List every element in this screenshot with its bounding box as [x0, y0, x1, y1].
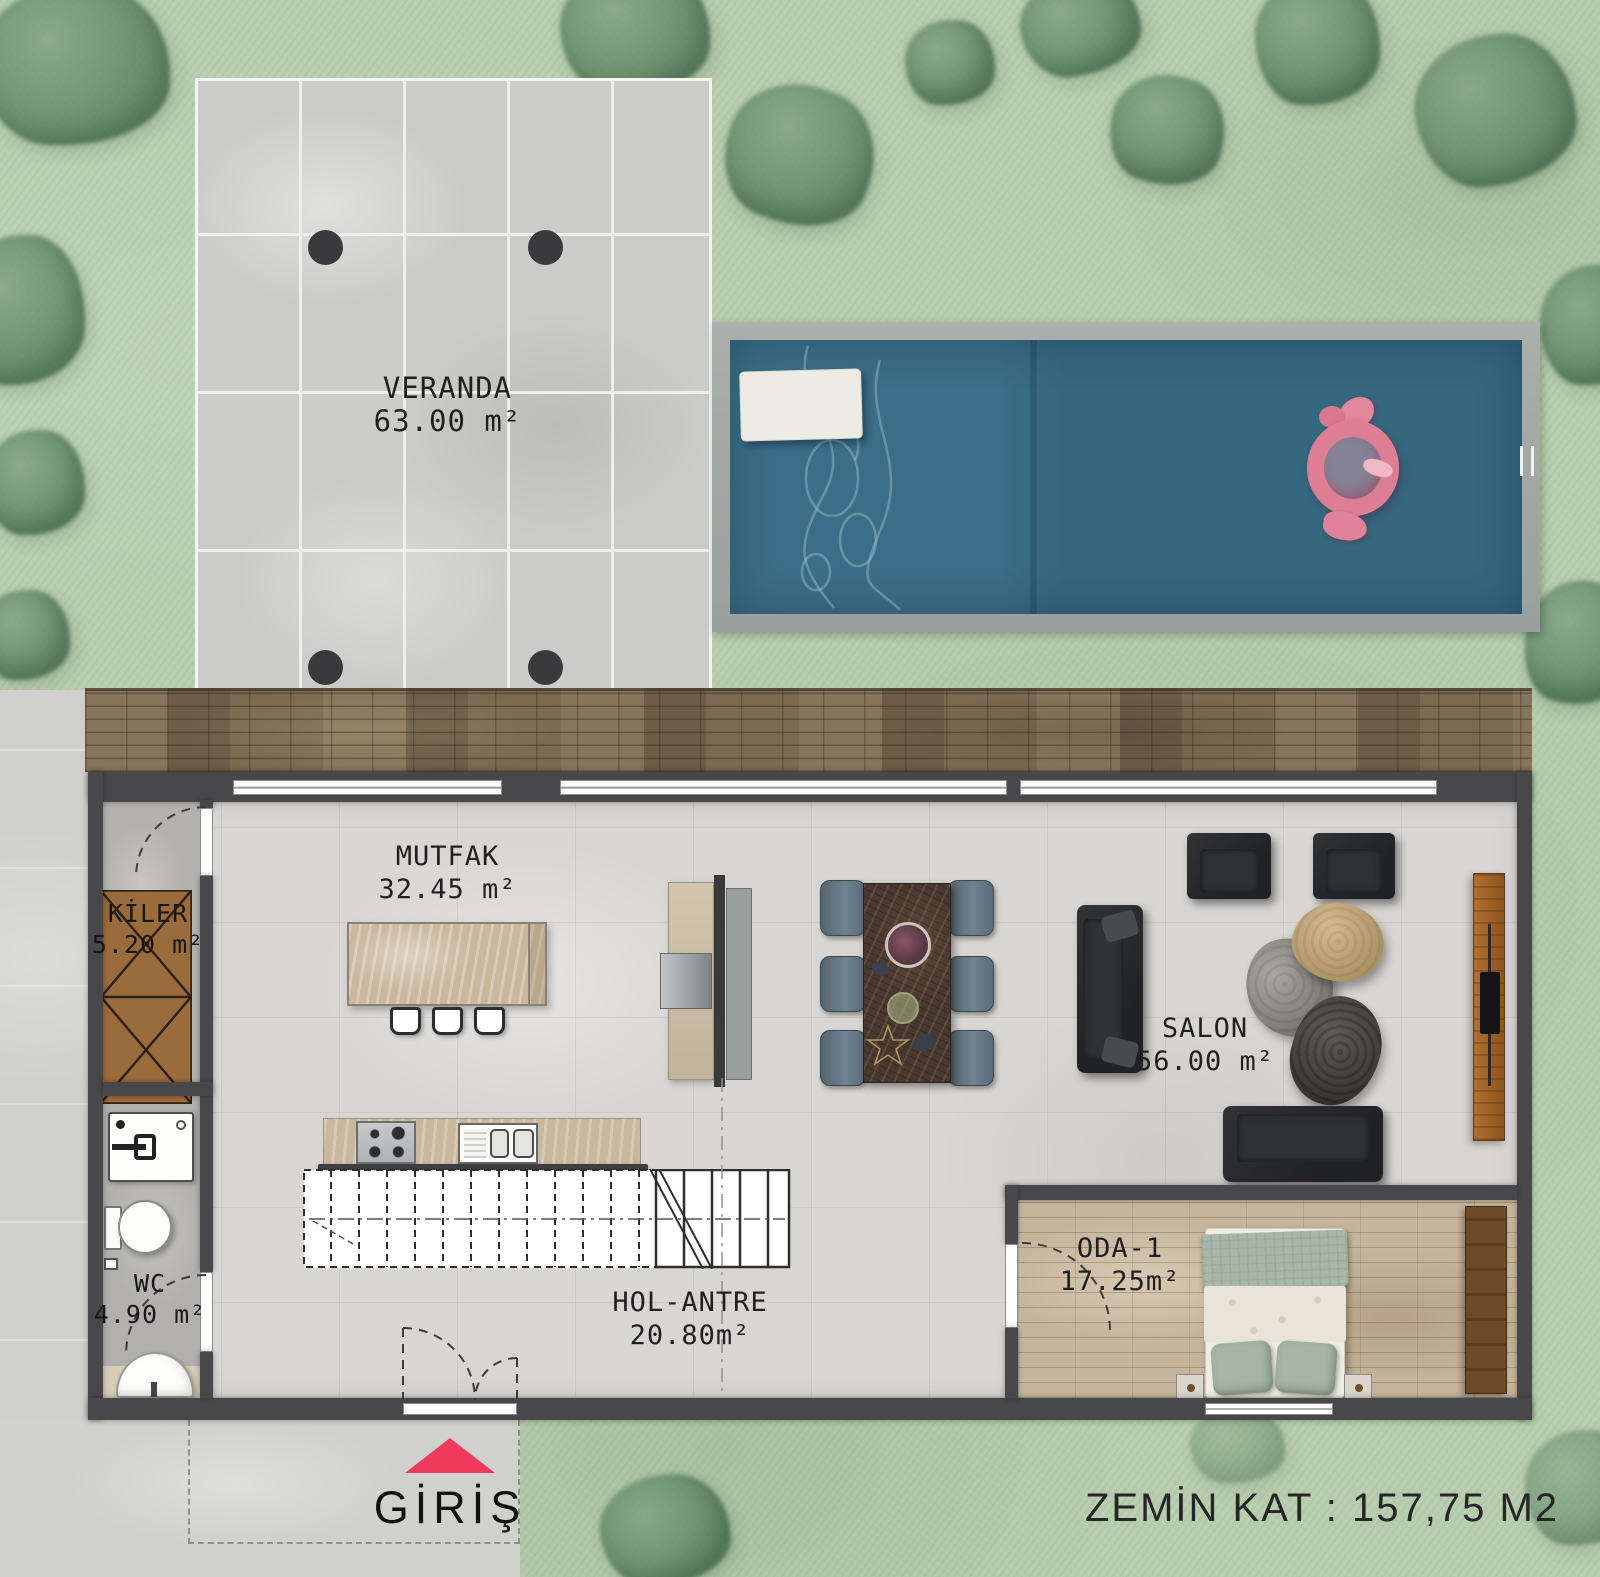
tree: [595, 1470, 734, 1577]
room-area: 4.90 m²: [85, 1299, 215, 1330]
room-name: MUTFAK: [360, 840, 535, 873]
shower-head: [176, 1120, 186, 1130]
bed-pillow: [1210, 1340, 1273, 1396]
pool-lounger: [739, 368, 863, 441]
pool-ladder: [1520, 446, 1534, 476]
veranda-column: [528, 650, 563, 685]
wall-pantry-wc-divider: [103, 1082, 213, 1096]
star-ornament: [866, 1024, 910, 1068]
bed-blanket: [1201, 1229, 1349, 1290]
room-name: KİLER: [88, 898, 208, 929]
nightstand-knob: [1187, 1384, 1195, 1392]
sofa-seat: [1237, 1114, 1369, 1162]
armchair-seat: [1326, 849, 1382, 893]
room-label-mutfak: MUTFAK 32.45 m²: [360, 840, 535, 906]
floor-plan: VERANDA 63.00 m² MUTFAK 32.45 m² KİLER 5…: [0, 0, 1600, 1577]
dining-chair: [820, 880, 866, 936]
bed-pillow: [1274, 1340, 1337, 1396]
table-decor: [870, 960, 891, 979]
tree: [1255, 0, 1380, 105]
tv-screen: [1480, 972, 1500, 1034]
entrance-label: GİRİŞ: [330, 1482, 570, 1534]
dining-chair: [948, 1030, 994, 1086]
pool-lane-shadow: [1030, 340, 1037, 614]
fruit-bowl: [885, 922, 931, 968]
dining-chair: [820, 956, 866, 1012]
wall-bedroom-left: [1005, 1328, 1018, 1398]
wall-top: [88, 772, 1532, 802]
drink-glass: [887, 992, 919, 1024]
sink-unit: [458, 1123, 538, 1164]
nightstand: [1344, 1374, 1372, 1400]
wall-bedroom-top: [1005, 1185, 1517, 1200]
dining-chair: [820, 1030, 866, 1086]
kitchen-island: [347, 922, 547, 1006]
wall-bedroom-left: [1005, 1185, 1018, 1244]
bedroom-door: [1005, 1244, 1018, 1328]
sofa-horizontal: [1223, 1106, 1383, 1182]
wall-partition: [200, 800, 213, 808]
bar-stool: [390, 1007, 421, 1035]
tree: [0, 430, 85, 535]
room-name: HOL-ANTRE: [600, 1286, 780, 1319]
shower-faucet-icon: [134, 1134, 156, 1160]
tree: [1098, 62, 1238, 198]
shower-drain: [116, 1120, 125, 1129]
tree: [1012, 0, 1148, 85]
veranda-column: [308, 650, 343, 685]
floor-title: ZEMİN KAT : 157,75 M2: [1085, 1486, 1575, 1531]
veranda-column: [308, 230, 343, 265]
armchair-seat: [1200, 849, 1258, 893]
room-area: 20.80m²: [600, 1319, 780, 1352]
bar-stool: [432, 1007, 463, 1035]
dining-table: [863, 883, 951, 1083]
room-area: 5.20 m²: [88, 929, 208, 960]
tree: [0, 235, 85, 385]
wall-partition: [200, 1352, 213, 1398]
sink-basin: [490, 1129, 509, 1158]
room-label-kiler: KİLER 5.20 m²: [88, 898, 208, 960]
cabinet-side-panel: [726, 888, 752, 1080]
tree: [1405, 25, 1584, 196]
toilet-bowl: [118, 1200, 172, 1254]
built-in-appliance: [660, 953, 712, 1009]
bed-duvet: [1204, 1286, 1346, 1342]
tree: [0, 0, 170, 145]
veranda-column: [528, 230, 563, 265]
dining-chair: [948, 880, 994, 936]
island-end-band: [528, 924, 545, 1004]
armchair: [1313, 833, 1395, 899]
entry-door-leaf: [403, 1403, 517, 1415]
washbasin-tap: [151, 1382, 157, 1397]
bar-stool: [474, 1007, 505, 1035]
room-name: SALON: [1135, 1012, 1275, 1045]
sofa-pillow: [1100, 1035, 1139, 1068]
entrance-arrow-icon: [405, 1438, 495, 1473]
sofa-pillow: [1100, 909, 1140, 943]
sofa-vertical: [1077, 905, 1143, 1073]
tree: [1540, 265, 1600, 385]
room-area: 56.00 m²: [1135, 1045, 1275, 1078]
sink-drainboard: [464, 1129, 486, 1158]
tree: [706, 64, 895, 247]
armchair: [1187, 833, 1271, 899]
tree: [0, 590, 70, 680]
window-strip: [233, 780, 502, 795]
room-label-salon: SALON 56.00 m²: [1135, 1012, 1275, 1078]
pantry-door: [200, 808, 213, 876]
tv-panel: [1473, 873, 1505, 1141]
wood-deck: [85, 688, 1532, 772]
wardrobe: [1465, 1206, 1507, 1394]
wall-bottom: [88, 1398, 1532, 1420]
nightstand-knob: [1355, 1384, 1363, 1392]
room-area: 63.00 m²: [320, 405, 575, 438]
shower-tray: [108, 1112, 194, 1182]
room-name: VERANDA: [320, 372, 575, 405]
room-name: ODA-1: [1050, 1232, 1190, 1265]
cabinet-frame: [714, 875, 725, 1087]
sink-basin: [513, 1129, 534, 1158]
room-label-hol-antre: HOL-ANTRE 20.80m²: [600, 1286, 780, 1352]
window-strip: [1020, 780, 1437, 795]
window-strip: [560, 780, 1007, 795]
table-decor: [912, 1032, 937, 1054]
room-label-wc: WC 4.90 m²: [85, 1268, 215, 1330]
staircase: [303, 1169, 791, 1269]
tree: [905, 20, 995, 105]
room-label-veranda: VERANDA 63.00 m²: [320, 372, 575, 438]
room-name: WC: [85, 1268, 215, 1299]
nightstand: [1176, 1374, 1204, 1400]
room-area: 32.45 m²: [360, 873, 535, 906]
stove: [356, 1121, 416, 1164]
room-label-oda1: ODA-1 17.25m²: [1050, 1232, 1190, 1298]
dining-chair: [948, 956, 994, 1012]
flamingo-float: [1305, 398, 1401, 544]
wall-right: [1517, 772, 1532, 1420]
window-strip: [1205, 1403, 1333, 1415]
room-area: 17.25m²: [1050, 1265, 1190, 1298]
